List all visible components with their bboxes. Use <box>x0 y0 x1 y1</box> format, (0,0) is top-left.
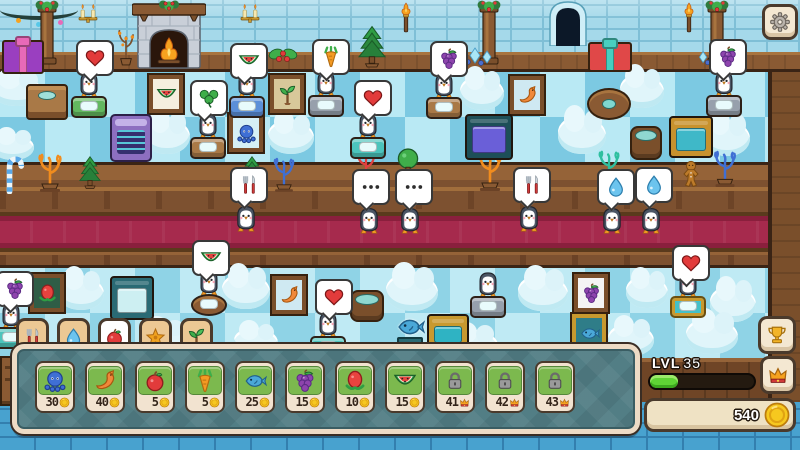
crown-button[interactable] <box>760 356 796 394</box>
crown-icon <box>767 364 789 386</box>
dining-table <box>229 96 265 118</box>
door-icon <box>546 0 590 46</box>
sapling-icon <box>277 84 298 105</box>
item-price: 15 <box>289 395 321 409</box>
wall-art-watermelon[interactable] <box>149 75 183 113</box>
watermelon-icon <box>156 84 177 105</box>
shrimp-icon <box>517 85 538 106</box>
coin-icon <box>259 397 270 408</box>
gift-purple <box>2 40 44 74</box>
sconce <box>76 3 100 23</box>
item-art <box>388 366 422 395</box>
watermelon-icon <box>238 50 260 72</box>
cloud <box>686 318 738 354</box>
item-art <box>88 366 122 395</box>
coral-icon <box>708 150 742 188</box>
wall-art-shrimp[interactable] <box>510 76 544 114</box>
penguin-icon <box>476 270 500 298</box>
fishstatue <box>392 312 428 348</box>
wall-art-redfruit[interactable] <box>30 274 64 312</box>
coin-icon <box>763 401 791 429</box>
torch-icon <box>398 2 414 34</box>
barrel <box>350 290 384 322</box>
shop-item-locked-41[interactable]: 41 <box>435 361 475 413</box>
drop-icon <box>605 176 627 198</box>
dining-table <box>706 95 742 117</box>
request-bubble-heart[interactable] <box>672 245 710 281</box>
cloud <box>460 76 504 110</box>
request-bubble-carrot[interactable] <box>312 39 350 75</box>
grapes-icon <box>293 369 317 393</box>
shop-item-shrimp[interactable]: 40 <box>85 361 125 413</box>
item-price: 15 <box>389 395 421 409</box>
item-art <box>238 366 272 395</box>
carrot-icon <box>193 369 217 393</box>
xp-bar <box>648 373 756 390</box>
shop-item-watermelon[interactable]: 15 <box>385 361 425 413</box>
coin-icon <box>309 397 320 408</box>
coin-icon <box>209 397 220 408</box>
gear-icon <box>769 11 791 33</box>
crown-icon <box>509 397 520 408</box>
request-bubble-watermelon[interactable] <box>192 240 230 276</box>
game-stage: 30405525151015414243 LVL35 540 <box>0 0 800 450</box>
item-art <box>438 366 472 395</box>
coin-icon <box>159 397 170 408</box>
coral-icon <box>268 156 300 194</box>
octopus-icon <box>236 123 257 144</box>
heart-icon <box>84 47 106 69</box>
penguin-customer[interactable] <box>639 205 663 235</box>
fish-icon <box>243 369 267 393</box>
item-art <box>38 366 72 395</box>
request-bubble-cutlery[interactable] <box>513 167 551 203</box>
fish-icon <box>579 323 600 344</box>
wall-art-shrimp[interactable] <box>272 276 306 314</box>
coin-icon <box>359 397 370 408</box>
coral-icon <box>32 152 68 194</box>
cloud <box>222 273 270 309</box>
octopus-icon <box>43 369 67 393</box>
oven-dark <box>465 114 513 160</box>
penguin-icon <box>357 205 381 235</box>
request-bubble-clover[interactable] <box>190 80 228 116</box>
dining-table <box>191 294 227 316</box>
cutlery-icon <box>238 174 260 196</box>
crown-icon <box>459 397 470 408</box>
level-label: LVL <box>652 355 680 371</box>
request-bubble-heart[interactable] <box>76 40 114 76</box>
penguin-customer[interactable] <box>357 205 381 235</box>
shop-item-locked-42[interactable]: 42 <box>485 361 525 413</box>
shrimp-icon <box>93 369 117 393</box>
coral-orange <box>32 152 68 194</box>
grapes-icon <box>438 48 460 70</box>
request-bubble-dots[interactable] <box>352 169 390 205</box>
drop-icon <box>643 174 665 196</box>
crown-icon <box>559 397 570 408</box>
sideboard <box>26 84 68 120</box>
oven-gold <box>669 116 713 158</box>
request-bubble-dots[interactable] <box>395 169 433 205</box>
shop-panel: 30405525151015414243 <box>12 344 640 434</box>
dragonfruit-icon <box>37 283 58 304</box>
torch <box>681 2 697 34</box>
penguin-customer-table-wood[interactable] <box>190 113 226 159</box>
grapes-icon <box>4 278 26 300</box>
item-art <box>538 366 572 395</box>
shop-item-locked-43[interactable]: 43 <box>535 361 575 413</box>
dining-table <box>308 95 344 117</box>
barrel <box>630 126 662 160</box>
level-indicator: LVL35 <box>652 355 701 371</box>
item-price: 43 <box>539 395 571 409</box>
request-bubble-cutlery[interactable] <box>230 167 268 203</box>
dining-table <box>470 296 506 318</box>
request-bubble-heart[interactable] <box>354 80 392 116</box>
dining-table <box>71 96 107 118</box>
roundtable <box>587 88 631 120</box>
item-price: 41 <box>439 395 471 409</box>
dots-icon <box>360 176 382 198</box>
watermelon-icon <box>200 247 222 269</box>
candy <box>2 156 26 194</box>
cutlery-icon <box>521 174 543 196</box>
level-value: 35 <box>683 355 701 371</box>
coin-balance[interactable]: 540 <box>644 398 796 432</box>
shop-slots: 30405525151015414243 <box>17 349 635 413</box>
item-price: 5 <box>189 395 221 409</box>
coin-amount: 540 <box>734 407 759 424</box>
fireplace <box>132 0 206 70</box>
grapes-icon <box>717 46 739 68</box>
coin-icon <box>409 397 420 408</box>
door <box>546 0 590 46</box>
item-price: 42 <box>489 395 521 409</box>
request-bubble-drop[interactable] <box>635 167 673 203</box>
pine <box>79 152 101 192</box>
item-art <box>288 366 322 395</box>
shop-item-grapes[interactable]: 15 <box>285 361 325 413</box>
coral-blue <box>268 156 300 194</box>
arcade <box>110 114 152 162</box>
lock-icon <box>445 371 465 391</box>
sconce <box>238 3 262 23</box>
ginger-icon <box>681 160 701 188</box>
shop-item-dragonfruit[interactable]: 10 <box>335 361 375 413</box>
holly <box>266 44 300 70</box>
dining-table <box>350 137 386 159</box>
lock-icon <box>495 371 515 391</box>
pine <box>358 24 386 68</box>
cloud <box>626 276 668 308</box>
fish-icon <box>392 312 428 348</box>
dining-table <box>426 97 462 119</box>
shop-item-fish[interactable]: 25 <box>235 361 275 413</box>
item-art <box>138 366 172 395</box>
shop-item-octopus[interactable]: 30 <box>35 361 75 413</box>
penguin-customer-table-gray[interactable] <box>470 272 506 318</box>
ginger <box>681 160 701 188</box>
apple-icon <box>143 369 167 393</box>
heart-icon <box>680 252 702 274</box>
trophy-icon <box>766 324 788 346</box>
gift-red <box>588 42 632 72</box>
pine-icon <box>358 24 386 68</box>
watermelon-icon <box>393 369 417 393</box>
request-bubble-watermelon[interactable] <box>230 43 268 79</box>
item-art <box>188 366 222 395</box>
xp-fill <box>650 375 678 388</box>
clover-icon <box>198 87 220 109</box>
dining-table <box>670 296 706 318</box>
carrot-icon <box>320 46 342 68</box>
candy-icon <box>2 156 26 194</box>
shrimp-icon <box>279 285 300 306</box>
shop-item-carrot[interactable]: 5 <box>185 361 225 413</box>
item-price: 5 <box>139 395 171 409</box>
lock-icon <box>545 371 565 391</box>
settings-button[interactable] <box>762 4 798 40</box>
cloud <box>558 116 606 154</box>
dining-table <box>190 137 226 159</box>
request-bubble-drop[interactable] <box>597 169 635 205</box>
item-price: 40 <box>89 395 121 409</box>
plant <box>114 28 138 66</box>
torch <box>398 2 414 34</box>
coin-icon <box>109 397 120 408</box>
item-art <box>488 366 522 395</box>
fireplace-icon <box>132 0 206 70</box>
coin-icon <box>59 397 70 408</box>
dots-icon <box>403 176 425 198</box>
plantpot-icon <box>114 28 138 66</box>
coral-blue <box>708 150 742 188</box>
item-price: 30 <box>39 395 71 409</box>
heart-icon <box>323 286 345 308</box>
item-price: 10 <box>339 395 371 409</box>
dragonfruit-icon <box>343 369 367 393</box>
item-price: 25 <box>239 395 271 409</box>
request-bubble-grapes[interactable] <box>0 271 34 307</box>
cloud <box>386 273 438 311</box>
request-bubble-heart[interactable] <box>315 279 353 315</box>
torch-icon <box>681 2 697 34</box>
penguin-icon <box>639 205 663 235</box>
cloud <box>268 120 314 154</box>
item-art <box>338 366 372 395</box>
oven-teal <box>110 276 154 320</box>
sconce-icon <box>238 3 262 23</box>
sconce-icon <box>76 3 100 23</box>
wall-art-octopus[interactable] <box>229 114 263 152</box>
shop-item-apple[interactable]: 5 <box>135 361 175 413</box>
wall-art-grapes[interactable] <box>574 274 608 312</box>
holly-icon <box>266 44 300 70</box>
request-bubble-grapes[interactable] <box>709 39 747 75</box>
heart-icon <box>362 87 384 109</box>
pine-icon <box>79 152 101 192</box>
trophy-button[interactable] <box>758 316 796 354</box>
request-bubble-grapes[interactable] <box>430 41 468 77</box>
grapes-icon <box>581 283 602 304</box>
wall-art-plant[interactable] <box>270 75 304 113</box>
cloud <box>58 276 104 310</box>
cloud <box>518 275 568 311</box>
